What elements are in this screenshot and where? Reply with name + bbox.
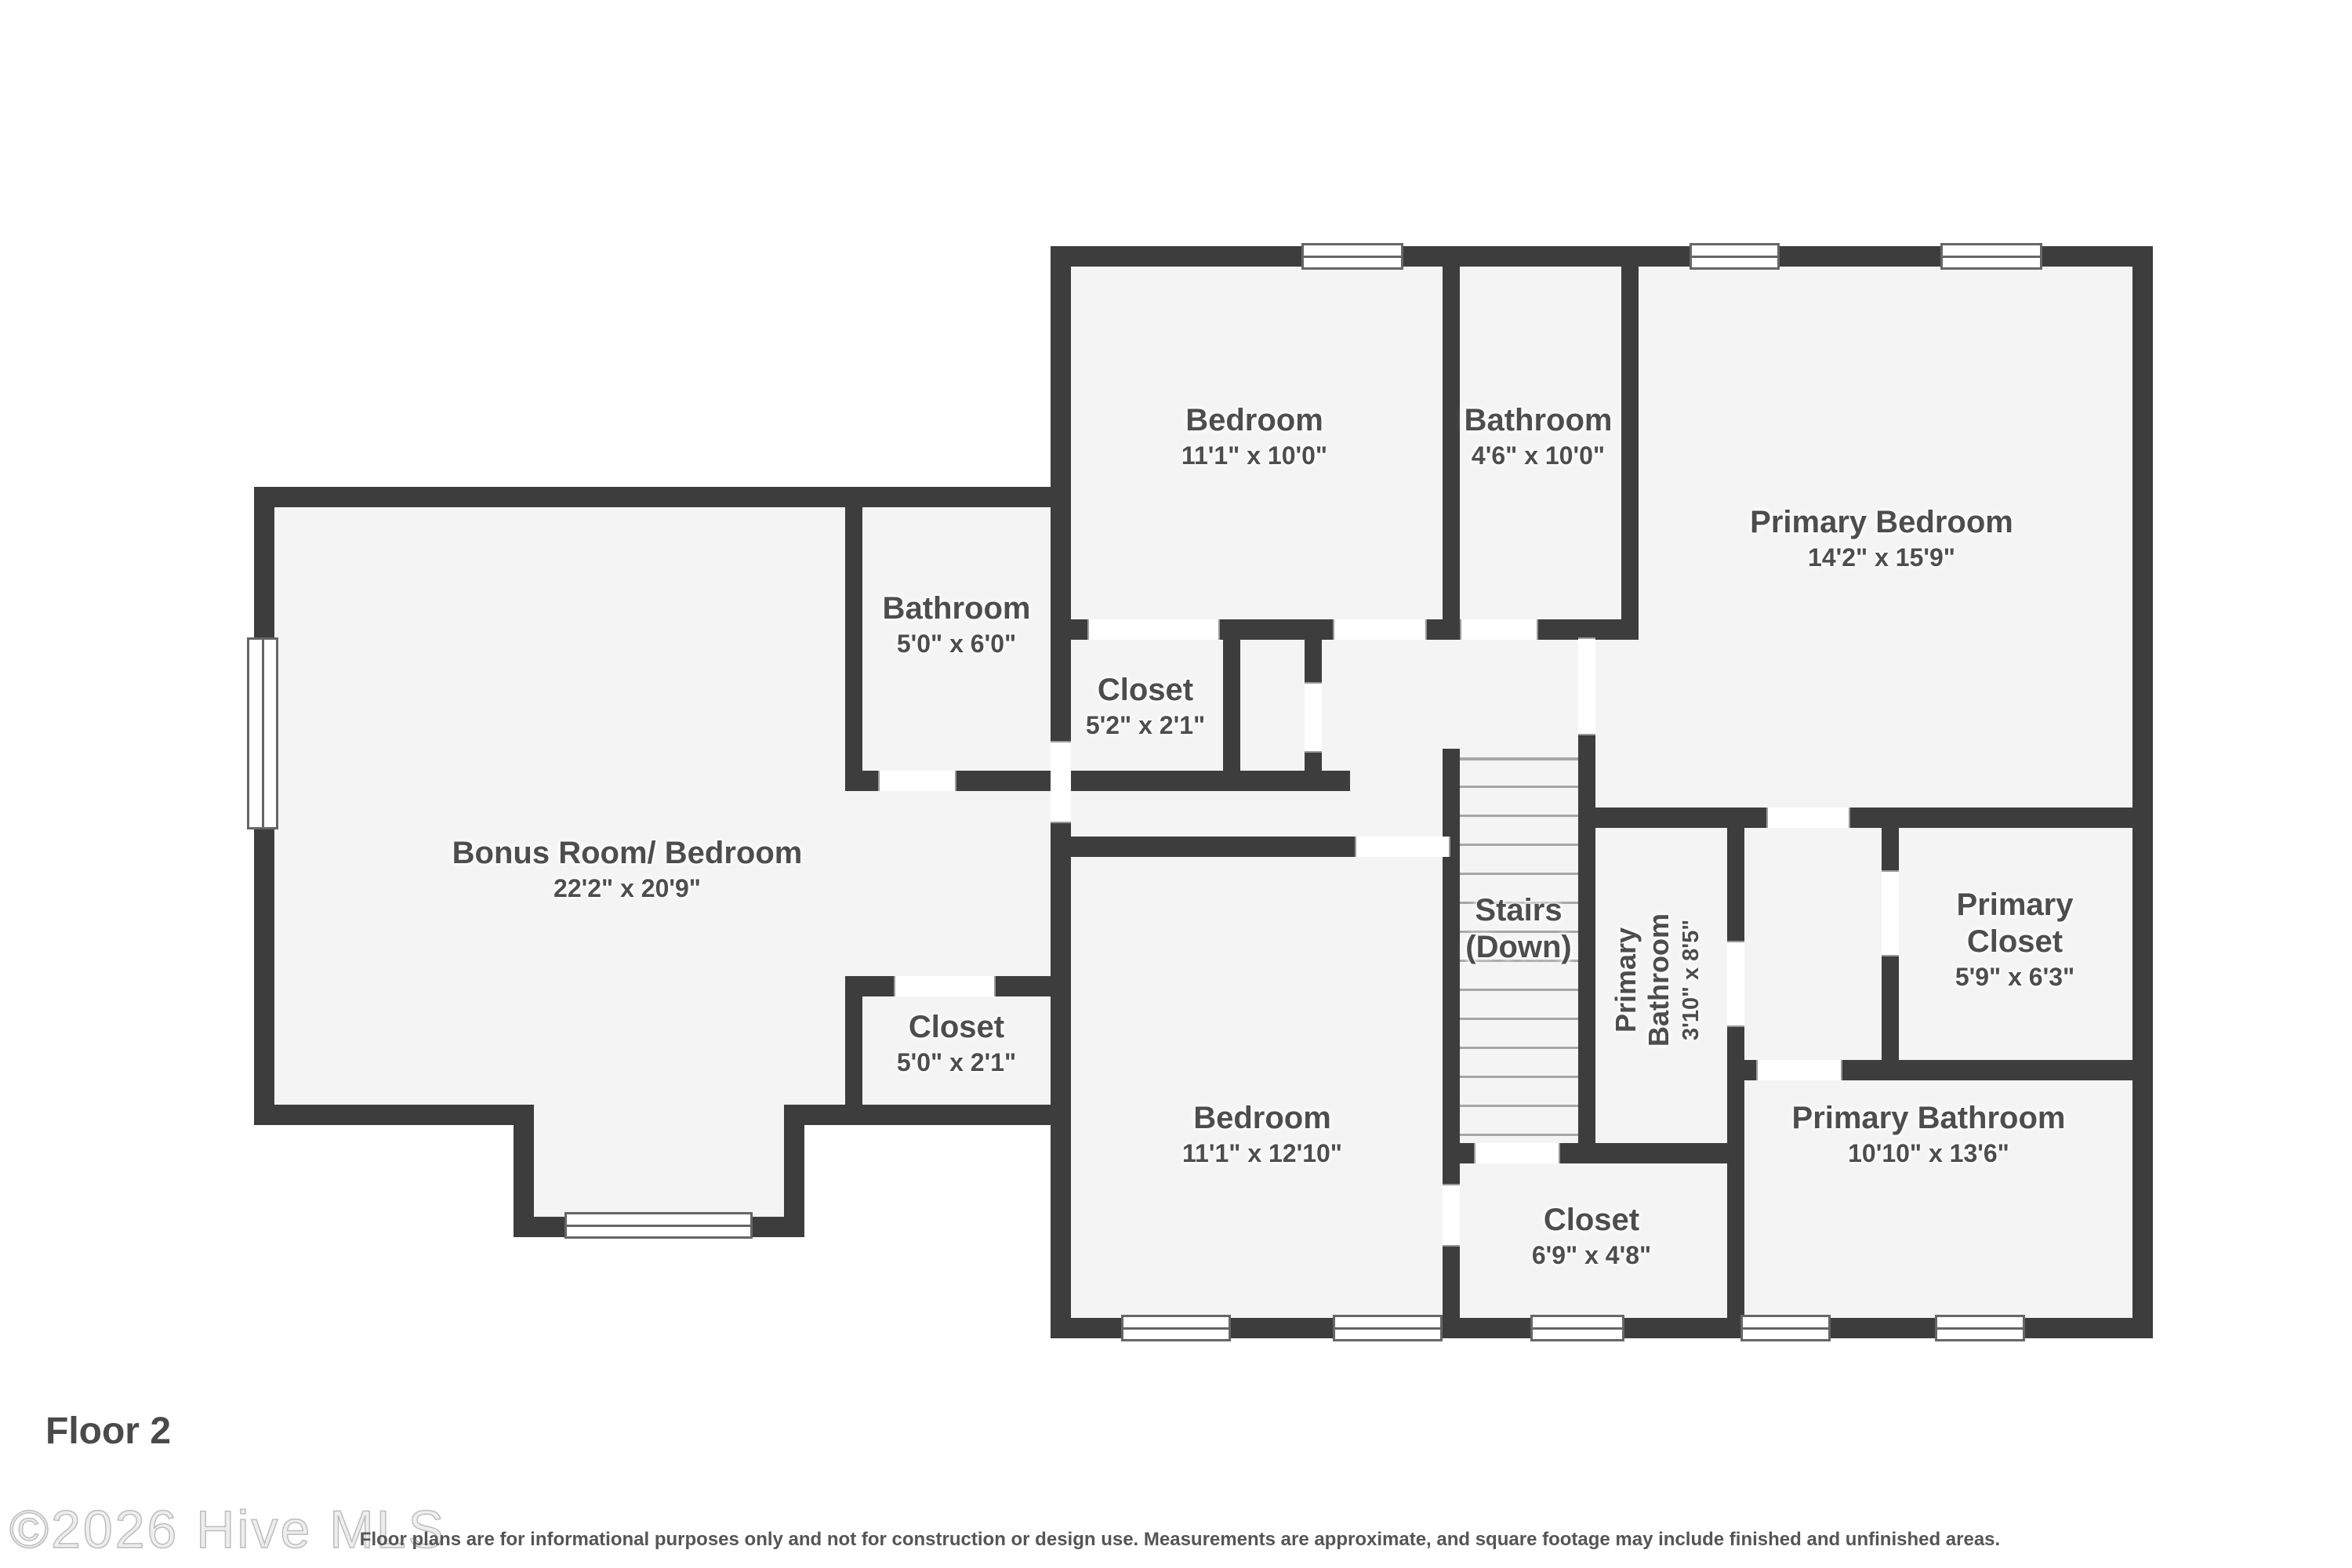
wall-segment [254, 487, 1068, 507]
door-opening [1355, 837, 1450, 857]
room-name: Stairs (Down) [1465, 892, 1572, 966]
window-symbol [564, 1212, 753, 1239]
room-name: Primary Bathroom [1610, 913, 1676, 1047]
stair-tread [1460, 786, 1578, 788]
window-pane [1692, 256, 1777, 258]
door-opening [1882, 870, 1899, 956]
room-label-primary-bathroom-large: Primary Bathroom 10'10" x 13'6" [1792, 1100, 2066, 1171]
room-dims: 11'1" x 12'10" [1182, 1137, 1342, 1171]
room-name: Bathroom [883, 590, 1031, 627]
room-dims: 6'9" x 4'8" [1532, 1239, 1651, 1272]
room-label-closet-5x2: Closet 5'2" x 2'1" [1086, 672, 1205, 742]
room-label-closet-6x4: Closet 6'9" x 4'8" [1532, 1202, 1651, 1272]
window-symbol [1301, 243, 1403, 270]
door-opening [1443, 1184, 1460, 1247]
room-name: Bedroom [1181, 402, 1327, 439]
window-pane [1304, 256, 1401, 258]
stair-tread [1460, 1018, 1578, 1020]
door-opening [894, 976, 996, 996]
room-name: Bedroom [1182, 1100, 1342, 1137]
wall-segment [784, 1105, 1068, 1125]
room-dims: 11'1" x 10'0" [1181, 439, 1327, 473]
door-opening [1305, 682, 1322, 753]
door-opening [1051, 741, 1071, 823]
window-pane [1123, 1327, 1229, 1330]
stair-tread [1460, 1047, 1578, 1049]
window-symbol [1740, 1315, 1831, 1341]
room-label-bonus-room: Bonus Room/ Bedroom 22'2" x 20'9" [452, 835, 803, 906]
wall-segment [845, 487, 862, 791]
room-dims: 22'2" x 20'9" [452, 872, 803, 906]
room-name: Closet [1086, 672, 1205, 709]
room-name: Primary Bathroom [1792, 1100, 2066, 1137]
room-dims: 14'2" x 15'9" [1750, 541, 2013, 575]
window-symbol [1333, 1315, 1443, 1341]
room-name: Closet [897, 1009, 1016, 1046]
window-pane [1533, 1327, 1622, 1330]
floor-title: Floor 2 [45, 1410, 171, 1453]
door-opening [1756, 1060, 1842, 1080]
wall-segment [1223, 619, 1240, 791]
room-name: Bathroom [1465, 402, 1613, 439]
window-pane [1335, 1327, 1440, 1330]
room-dims: 5'9" x 6'3" [1955, 961, 2074, 995]
stair-tread [1460, 1134, 1578, 1136]
wall-segment [254, 1105, 534, 1125]
room-dims: 3'10" x 8'5" [1676, 913, 1707, 1047]
room-dims: 5'0" x 6'0" [883, 627, 1031, 661]
window-symbol [247, 637, 278, 829]
stair-tread [1460, 1105, 1578, 1107]
window-symbol [1690, 243, 1780, 270]
wall-segment [1727, 808, 1744, 1338]
window-symbol [1530, 1315, 1624, 1341]
window-pane [1943, 256, 2040, 258]
room-label-primary-bathroom-small: Primary Bathroom 3'10" x 8'5" [1610, 913, 1707, 1047]
room-name: Primary Bedroom [1750, 504, 2013, 541]
door-opening [878, 771, 956, 791]
window-symbol [1935, 1315, 2025, 1341]
window-symbol [1121, 1315, 1231, 1341]
wall-segment [1621, 246, 1639, 633]
room-label-bathroom-4x10: Bathroom 4'6" x 10'0" [1465, 402, 1613, 473]
door-opening [1460, 619, 1538, 640]
room-name: Primary Closet [1955, 887, 2074, 960]
stair-edge-line [1460, 757, 1578, 760]
stair-tread [1460, 844, 1578, 846]
door-opening [1766, 808, 1850, 828]
wall-segment [1443, 246, 1460, 640]
room-dims: 4'6" x 10'0" [1465, 439, 1613, 473]
door-opening [1333, 619, 1427, 640]
room-label-bedroom-11x10: Bedroom 11'1" x 10'0" [1181, 402, 1327, 473]
room-label-closet-5x2-lower: Closet 5'0" x 2'1" [897, 1009, 1016, 1080]
room-label-primary-closet: Primary Closet 5'9" x 6'3" [1955, 887, 2074, 995]
stair-tread [1460, 873, 1578, 875]
door-opening [1087, 619, 1220, 640]
room-name: Closet [1532, 1202, 1651, 1239]
wall-segment [2132, 246, 2153, 1338]
stair-tread [1460, 989, 1578, 991]
room-label-bathroom-5x6: Bathroom 5'0" x 6'0" [883, 590, 1031, 661]
disclaimer-text: Floor plans are for informational purpos… [360, 1529, 2000, 1551]
room-label-stairs: Stairs (Down) [1465, 892, 1572, 966]
door-opening [1578, 637, 1595, 735]
room-label-primary-bedroom: Primary Bedroom 14'2" x 15'9" [1750, 504, 2013, 575]
window-pane [262, 640, 264, 827]
room-name: Bonus Room/ Bedroom [452, 835, 803, 872]
room-label-bedroom-11x12: Bedroom 11'1" x 12'10" [1182, 1100, 1342, 1171]
window-pane [1937, 1327, 2023, 1330]
stair-tread [1460, 815, 1578, 817]
door-opening [1727, 941, 1744, 1027]
room-dims: 10'10" x 13'6" [1792, 1137, 2066, 1171]
window-pane [567, 1225, 750, 1227]
wall-segment [845, 976, 862, 1125]
window-symbol [1940, 243, 2042, 270]
floor-plan: Bonus Room/ Bedroom 22'2" x 20'9" Bathro… [0, 0, 2352, 1568]
wall-segment [1578, 808, 2153, 828]
room-dims: 5'2" x 2'1" [1086, 709, 1205, 742]
stair-tread [1460, 1076, 1578, 1078]
room-dims: 5'0" x 2'1" [897, 1046, 1016, 1080]
window-pane [1743, 1327, 1828, 1330]
door-opening [1474, 1143, 1560, 1163]
